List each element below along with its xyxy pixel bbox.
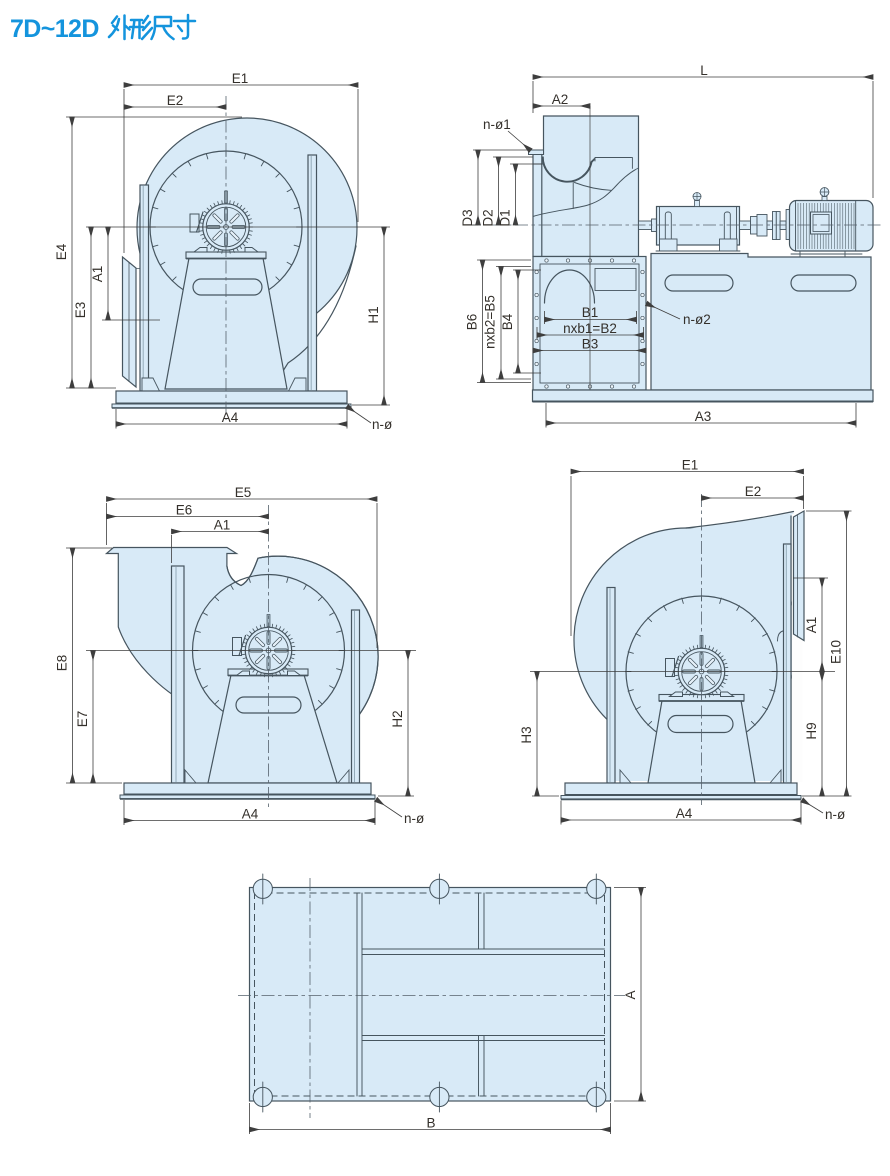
svg-text:n-ø2: n-ø2 [683,312,711,327]
svg-text:H3: H3 [519,726,534,743]
svg-text:E6: E6 [176,502,193,517]
svg-text:E10: E10 [829,640,844,664]
svg-text:H1: H1 [366,306,381,323]
svg-text:E5: E5 [235,485,252,500]
svg-text:E3: E3 [73,302,88,319]
svg-text:nxb2=B5: nxb2=B5 [483,295,498,349]
svg-text:D2: D2 [481,209,496,226]
svg-text:n-ø: n-ø [404,811,424,826]
svg-text:E1: E1 [682,457,699,472]
svg-text:A3: A3 [695,409,712,424]
svg-text:nxb1=B2: nxb1=B2 [563,321,617,336]
svg-text:7D~12D: 7D~12D [10,15,99,43]
svg-text:E1: E1 [232,71,249,86]
svg-text:B: B [426,1115,435,1130]
svg-text:n-ø: n-ø [372,417,392,432]
svg-text:A4: A4 [242,806,259,821]
svg-text:A2: A2 [552,92,569,107]
svg-text:E8: E8 [55,655,70,672]
svg-text:L: L [700,63,708,78]
svg-text:D1: D1 [498,209,513,226]
svg-text:E2: E2 [745,484,762,499]
svg-text:n-ø1: n-ø1 [483,117,511,132]
svg-text:A4: A4 [676,806,693,821]
svg-text:B4: B4 [500,313,515,330]
svg-text:B6: B6 [465,314,480,331]
svg-text:D3: D3 [460,209,475,226]
svg-text:H2: H2 [390,710,405,727]
svg-text:E4: E4 [54,243,69,260]
svg-text:E2: E2 [167,93,184,108]
svg-text:A: A [623,990,638,999]
svg-text:A1: A1 [214,517,231,532]
svg-text:A4: A4 [222,410,239,425]
svg-text:B3: B3 [582,336,599,351]
svg-text:B1: B1 [582,305,599,320]
svg-text:H9: H9 [804,722,819,739]
svg-text:E7: E7 [75,711,90,728]
svg-text:A1: A1 [804,617,819,634]
svg-text:A1: A1 [90,266,105,283]
svg-text:n-ø: n-ø [825,807,845,822]
